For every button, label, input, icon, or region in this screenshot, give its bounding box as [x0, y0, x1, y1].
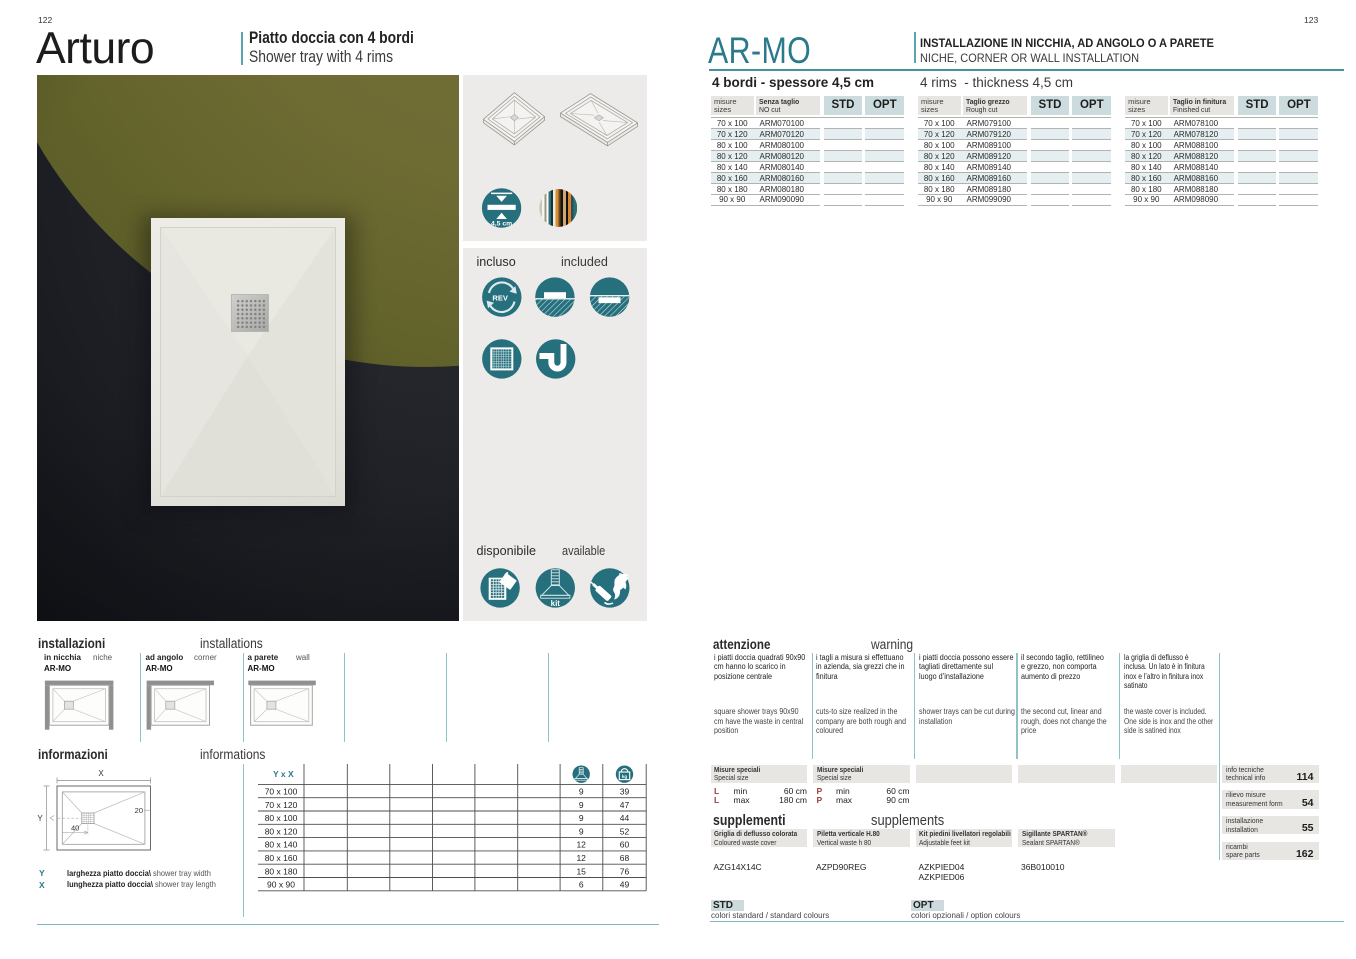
svg-text:12: 12 — [576, 853, 586, 863]
svg-text:44: 44 — [619, 813, 629, 823]
svg-text:39: 39 — [619, 787, 629, 797]
svg-text:60: 60 — [619, 840, 629, 850]
svg-text:Y x X: Y x X — [273, 769, 294, 779]
svg-text:9: 9 — [578, 787, 583, 797]
svg-text:70 x 120: 70 x 120 — [264, 800, 297, 810]
svg-text:6: 6 — [578, 880, 583, 890]
svg-text:9: 9 — [578, 826, 583, 836]
svg-text:80 x 120: 80 x 120 — [264, 826, 297, 836]
svg-text:90 x 90: 90 x 90 — [267, 880, 295, 890]
svg-text:40: 40 — [71, 824, 79, 833]
svg-text:80 x 100: 80 x 100 — [264, 813, 297, 823]
svg-text:70 x 100: 70 x 100 — [264, 787, 297, 797]
svg-text:4,5 cm: 4,5 cm — [491, 220, 512, 227]
svg-text:kit: kit — [551, 599, 561, 608]
svg-text:Y: Y — [37, 814, 43, 823]
svg-text:47: 47 — [619, 800, 629, 810]
svg-text:80 x 140: 80 x 140 — [264, 840, 297, 850]
svg-text:76: 76 — [619, 866, 629, 876]
svg-text:20: 20 — [135, 806, 143, 815]
svg-text:49: 49 — [619, 880, 629, 890]
svg-text:15: 15 — [576, 866, 586, 876]
svg-text:80 x 160: 80 x 160 — [264, 853, 297, 863]
svg-text:68: 68 — [619, 853, 629, 863]
svg-text:12: 12 — [576, 840, 586, 850]
svg-text:9: 9 — [578, 813, 583, 823]
svg-text:80 x 180: 80 x 180 — [264, 866, 297, 876]
svg-text:52: 52 — [619, 826, 629, 836]
svg-text:9: 9 — [578, 800, 583, 810]
svg-text:REV: REV — [492, 293, 509, 302]
svg-text:kg: kg — [621, 774, 627, 779]
svg-text:X: X — [98, 769, 104, 778]
